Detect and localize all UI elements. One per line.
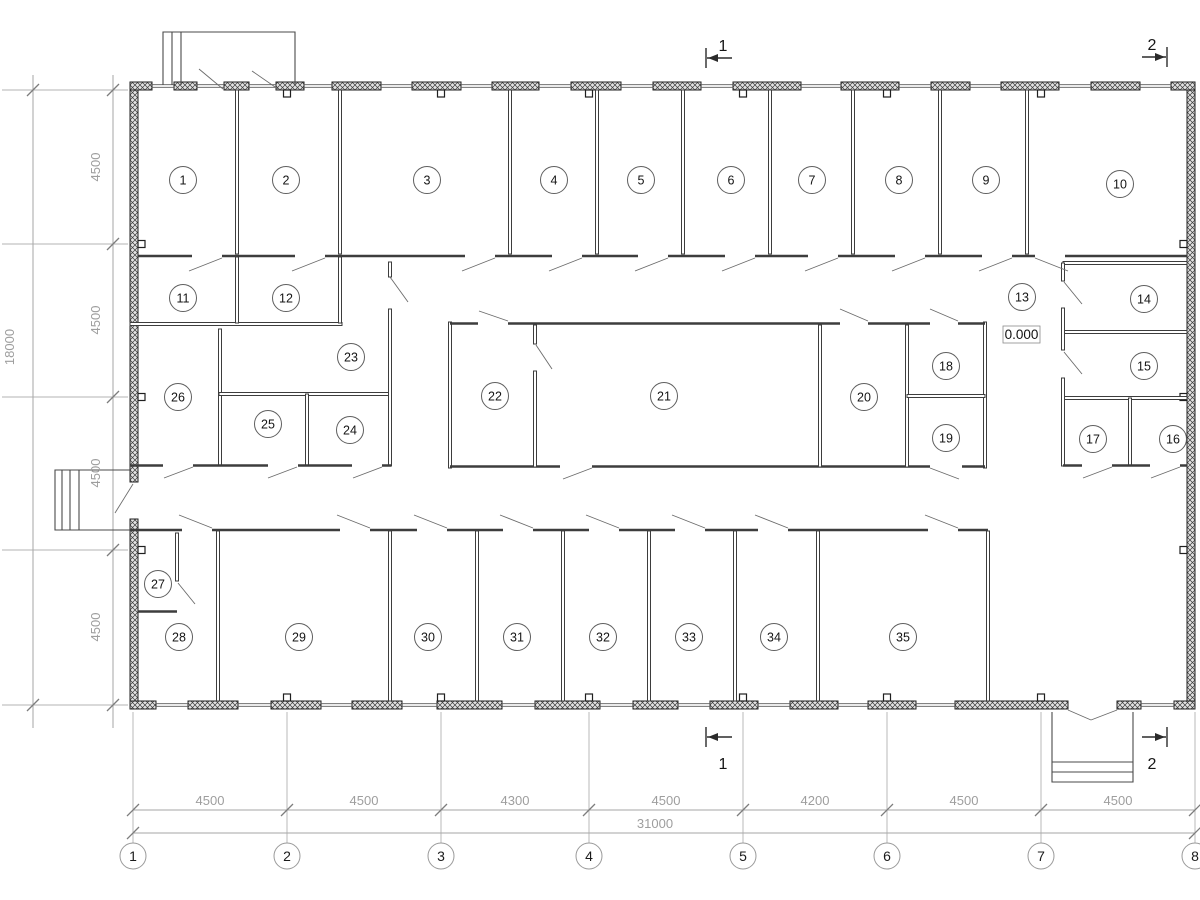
room-number: 21 (657, 390, 671, 404)
section-marker-1-2: 1 (706, 727, 732, 773)
room-number: 11 (177, 292, 190, 306)
grid-bubble-number: 7 (1037, 848, 1045, 864)
room-number: 14 (1137, 293, 1151, 307)
room-number: 16 (1166, 433, 1180, 447)
level-marker: 0.000 (1003, 326, 1040, 343)
section-number: 2 (1148, 37, 1157, 54)
grid-bubble-number: 2 (283, 848, 291, 864)
room-number: 33 (682, 631, 696, 645)
room-label-35: 35 (890, 624, 917, 651)
room-number: 34 (767, 631, 781, 645)
section-number: 1 (719, 756, 728, 773)
room-label-34: 34 (761, 624, 788, 651)
room-label-6: 6 (718, 167, 745, 194)
section-markers: 1212 (706, 37, 1167, 773)
room-number: 24 (343, 424, 357, 438)
floor-plan-drawing: 0.000 1234567891011121314151617181920212… (0, 0, 1200, 900)
section-marker-2-3: 2 (1142, 727, 1167, 773)
room-label-15: 15 (1131, 353, 1158, 380)
section-arrowhead (708, 733, 718, 741)
room-label-24: 24 (337, 417, 364, 444)
room-number: 31 (510, 631, 524, 645)
room-labels: 1234567891011121314151617181920212223242… (145, 167, 1187, 651)
dim-left-0: 4500 (88, 153, 103, 182)
grid-bubble-5: 5 (730, 843, 756, 869)
room-number: 32 (596, 631, 610, 645)
room-number: 26 (171, 391, 185, 405)
room-number: 19 (939, 432, 953, 446)
grid-bubble-number: 8 (1191, 848, 1199, 864)
room-label-31: 31 (504, 624, 531, 651)
grid-bubble-7: 7 (1028, 843, 1054, 869)
room-label-12: 12 (273, 285, 300, 312)
room-label-13: 13 (1009, 284, 1036, 311)
room-label-8: 8 (886, 167, 913, 194)
grid-bubble-6: 6 (874, 843, 900, 869)
grid-bubble-number: 5 (739, 848, 747, 864)
room-number: 9 (983, 174, 990, 188)
grid-bubble-number: 4 (585, 848, 593, 864)
section-marker-2-1: 2 (1142, 37, 1167, 67)
section-marker-1-0: 1 (706, 38, 732, 68)
section-arrowhead (1155, 733, 1165, 741)
dim-bottom-2: 4300 (501, 793, 530, 808)
dim-left-3: 4500 (88, 613, 103, 642)
room-number: 10 (1113, 178, 1127, 192)
room-number: 28 (172, 631, 186, 645)
room-number: 30 (421, 631, 435, 645)
grid-bubble-2: 2 (274, 843, 300, 869)
room-label-25: 25 (255, 411, 282, 438)
room-label-30: 30 (415, 624, 442, 651)
room-number: 25 (261, 418, 275, 432)
room-number: 2 (283, 174, 290, 188)
room-label-22: 22 (482, 383, 509, 410)
room-label-23: 23 (338, 344, 365, 371)
room-label-19: 19 (933, 425, 960, 452)
dim-total-left: 18000 (2, 329, 17, 365)
dim-left-2: 4500 (88, 459, 103, 488)
room-number: 18 (939, 360, 953, 374)
level-marker-value: 0.000 (1005, 327, 1039, 342)
room-number: 1 (180, 174, 187, 188)
room-label-1: 1 (170, 167, 197, 194)
dimension-labels: 4500450043004500420045004500450045004500… (88, 153, 1132, 808)
grid-bubble-1: 1 (120, 843, 146, 869)
room-label-17: 17 (1080, 426, 1107, 453)
room-number: 8 (896, 174, 903, 188)
room-label-4: 4 (541, 167, 568, 194)
room-number: 12 (279, 292, 293, 306)
room-number: 23 (344, 351, 358, 365)
room-label-16: 16 (1160, 426, 1187, 453)
section-number: 2 (1148, 756, 1157, 773)
room-number: 27 (151, 578, 165, 592)
grid-bubbles: 12345678 (120, 843, 1200, 869)
room-label-26: 26 (165, 384, 192, 411)
room-number: 20 (857, 391, 871, 405)
grid-bubble-number: 1 (129, 848, 137, 864)
dim-bottom-1: 4500 (350, 793, 379, 808)
room-label-29: 29 (286, 624, 313, 651)
room-label-14: 14 (1131, 286, 1158, 313)
room-number: 6 (728, 174, 735, 188)
room-label-32: 32 (590, 624, 617, 651)
room-number: 15 (1137, 360, 1151, 374)
room-label-11: 11 (170, 285, 197, 312)
room-label-33: 33 (676, 624, 703, 651)
grid-bubble-number: 6 (883, 848, 891, 864)
dim-bottom-0: 4500 (196, 793, 225, 808)
room-number: 29 (292, 631, 306, 645)
grid-bubble-4: 4 (576, 843, 602, 869)
room-number: 7 (809, 174, 816, 188)
room-number: 5 (638, 174, 645, 188)
dim-bottom-5: 4500 (950, 793, 979, 808)
dim-left-1: 4500 (88, 306, 103, 335)
room-label-20: 20 (851, 384, 878, 411)
room-label-3: 3 (414, 167, 441, 194)
grid-bubble-3: 3 (428, 843, 454, 869)
floor-plan-page: 0.000 1234567891011121314151617181920212… (0, 0, 1200, 900)
section-arrowhead (1155, 53, 1165, 61)
room-number: 35 (896, 631, 910, 645)
room-label-18: 18 (933, 353, 960, 380)
room-label-21: 21 (651, 383, 678, 410)
dim-bottom-3: 4500 (652, 793, 681, 808)
room-number: 22 (488, 390, 502, 404)
room-label-7: 7 (799, 167, 826, 194)
grid-bubble-8: 8 (1182, 843, 1200, 869)
room-number: 17 (1086, 433, 1100, 447)
dim-total-bottom: 31000 (637, 816, 673, 831)
room-number: 3 (424, 174, 431, 188)
room-label-5: 5 (628, 167, 655, 194)
grid-bubble-number: 3 (437, 848, 445, 864)
dim-bottom-6: 4500 (1104, 793, 1133, 808)
section-arrowhead (708, 54, 718, 62)
room-number: 13 (1015, 291, 1029, 305)
room-label-27: 27 (145, 571, 172, 598)
room-label-10: 10 (1107, 171, 1134, 198)
room-label-28: 28 (166, 624, 193, 651)
room-label-2: 2 (273, 167, 300, 194)
dim-bottom-4: 4200 (801, 793, 830, 808)
room-label-9: 9 (973, 167, 1000, 194)
room-number: 4 (551, 174, 558, 188)
section-number: 1 (719, 38, 728, 55)
